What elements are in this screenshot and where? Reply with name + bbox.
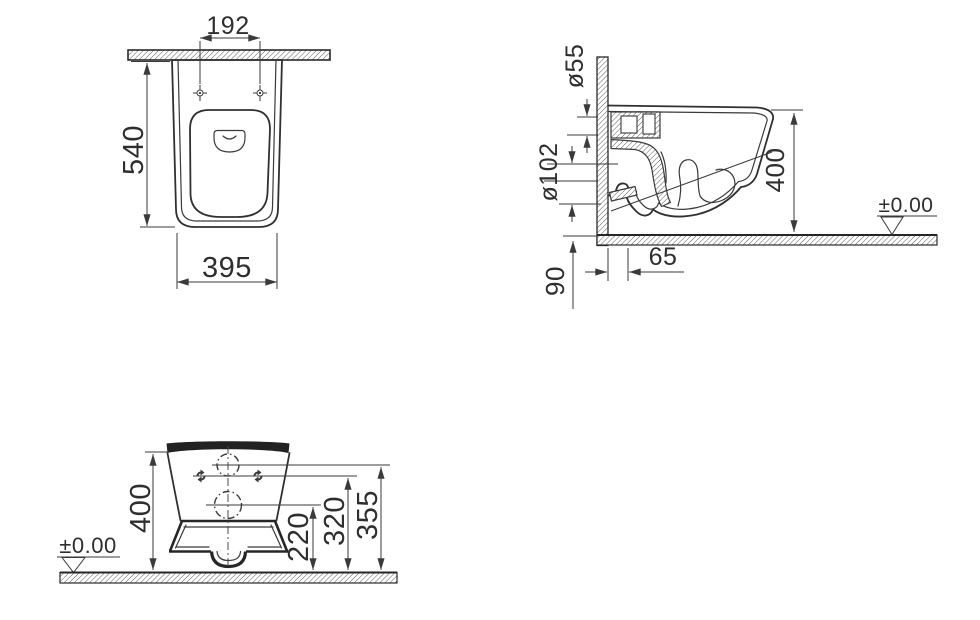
flush-rim-smile [223, 136, 236, 139]
technical-drawing-sheet: 192 540 395 [0, 0, 980, 620]
rim-channel-slot-right [643, 114, 655, 134]
dim-540-label: 540 [118, 125, 150, 175]
toilet-rim-inner-plan [178, 60, 276, 221]
wall-section-side [597, 57, 608, 246]
wall-section-plan [128, 50, 330, 60]
dim-inlet-label: ø55 [561, 44, 589, 89]
dim-220-label: 220 [283, 512, 315, 562]
outlet-spigot-section [610, 187, 638, 202]
dim-355-label: 355 [352, 490, 384, 540]
mounting-hole-marker-left [193, 85, 207, 101]
dim-90-label: 90 [540, 266, 570, 296]
datum-label-rear: ±0.00 [59, 533, 116, 558]
mounting-hole-marker-right [253, 85, 267, 101]
dim-395-label: 395 [202, 252, 252, 284]
dim-192-label: 192 [206, 12, 249, 40]
dim-65-label: 65 [649, 243, 678, 271]
side-view: ø55 ø102 400 ±0.00 65 90 [535, 44, 937, 309]
trapway-notch-inner [217, 552, 241, 561]
dim-320-label: 320 [319, 496, 351, 546]
rear-view: 400 220 320 355 ±0.00 [57, 441, 397, 583]
rim-channel-slot-left [621, 116, 637, 133]
floor-section-rear [60, 573, 397, 584]
bowl-opening [190, 110, 270, 217]
dim-400-rear-label: 400 [125, 483, 157, 533]
datum-label-side: ±0.00 [879, 194, 934, 217]
dim-outlet-label: ø102 [535, 143, 563, 202]
datum-triangle-icon-rear [62, 558, 85, 573]
dim-400-side-label: 400 [760, 148, 790, 193]
body-side-left-rear [168, 453, 181, 521]
plan-view: 192 540 395 [118, 12, 330, 289]
flush-rim-detail [214, 131, 245, 153]
wc-dimension-drawing: 192 540 395 [0, 0, 980, 620]
datum-triangle-icon-side [881, 217, 903, 235]
body-side-right-rear [277, 453, 290, 521]
